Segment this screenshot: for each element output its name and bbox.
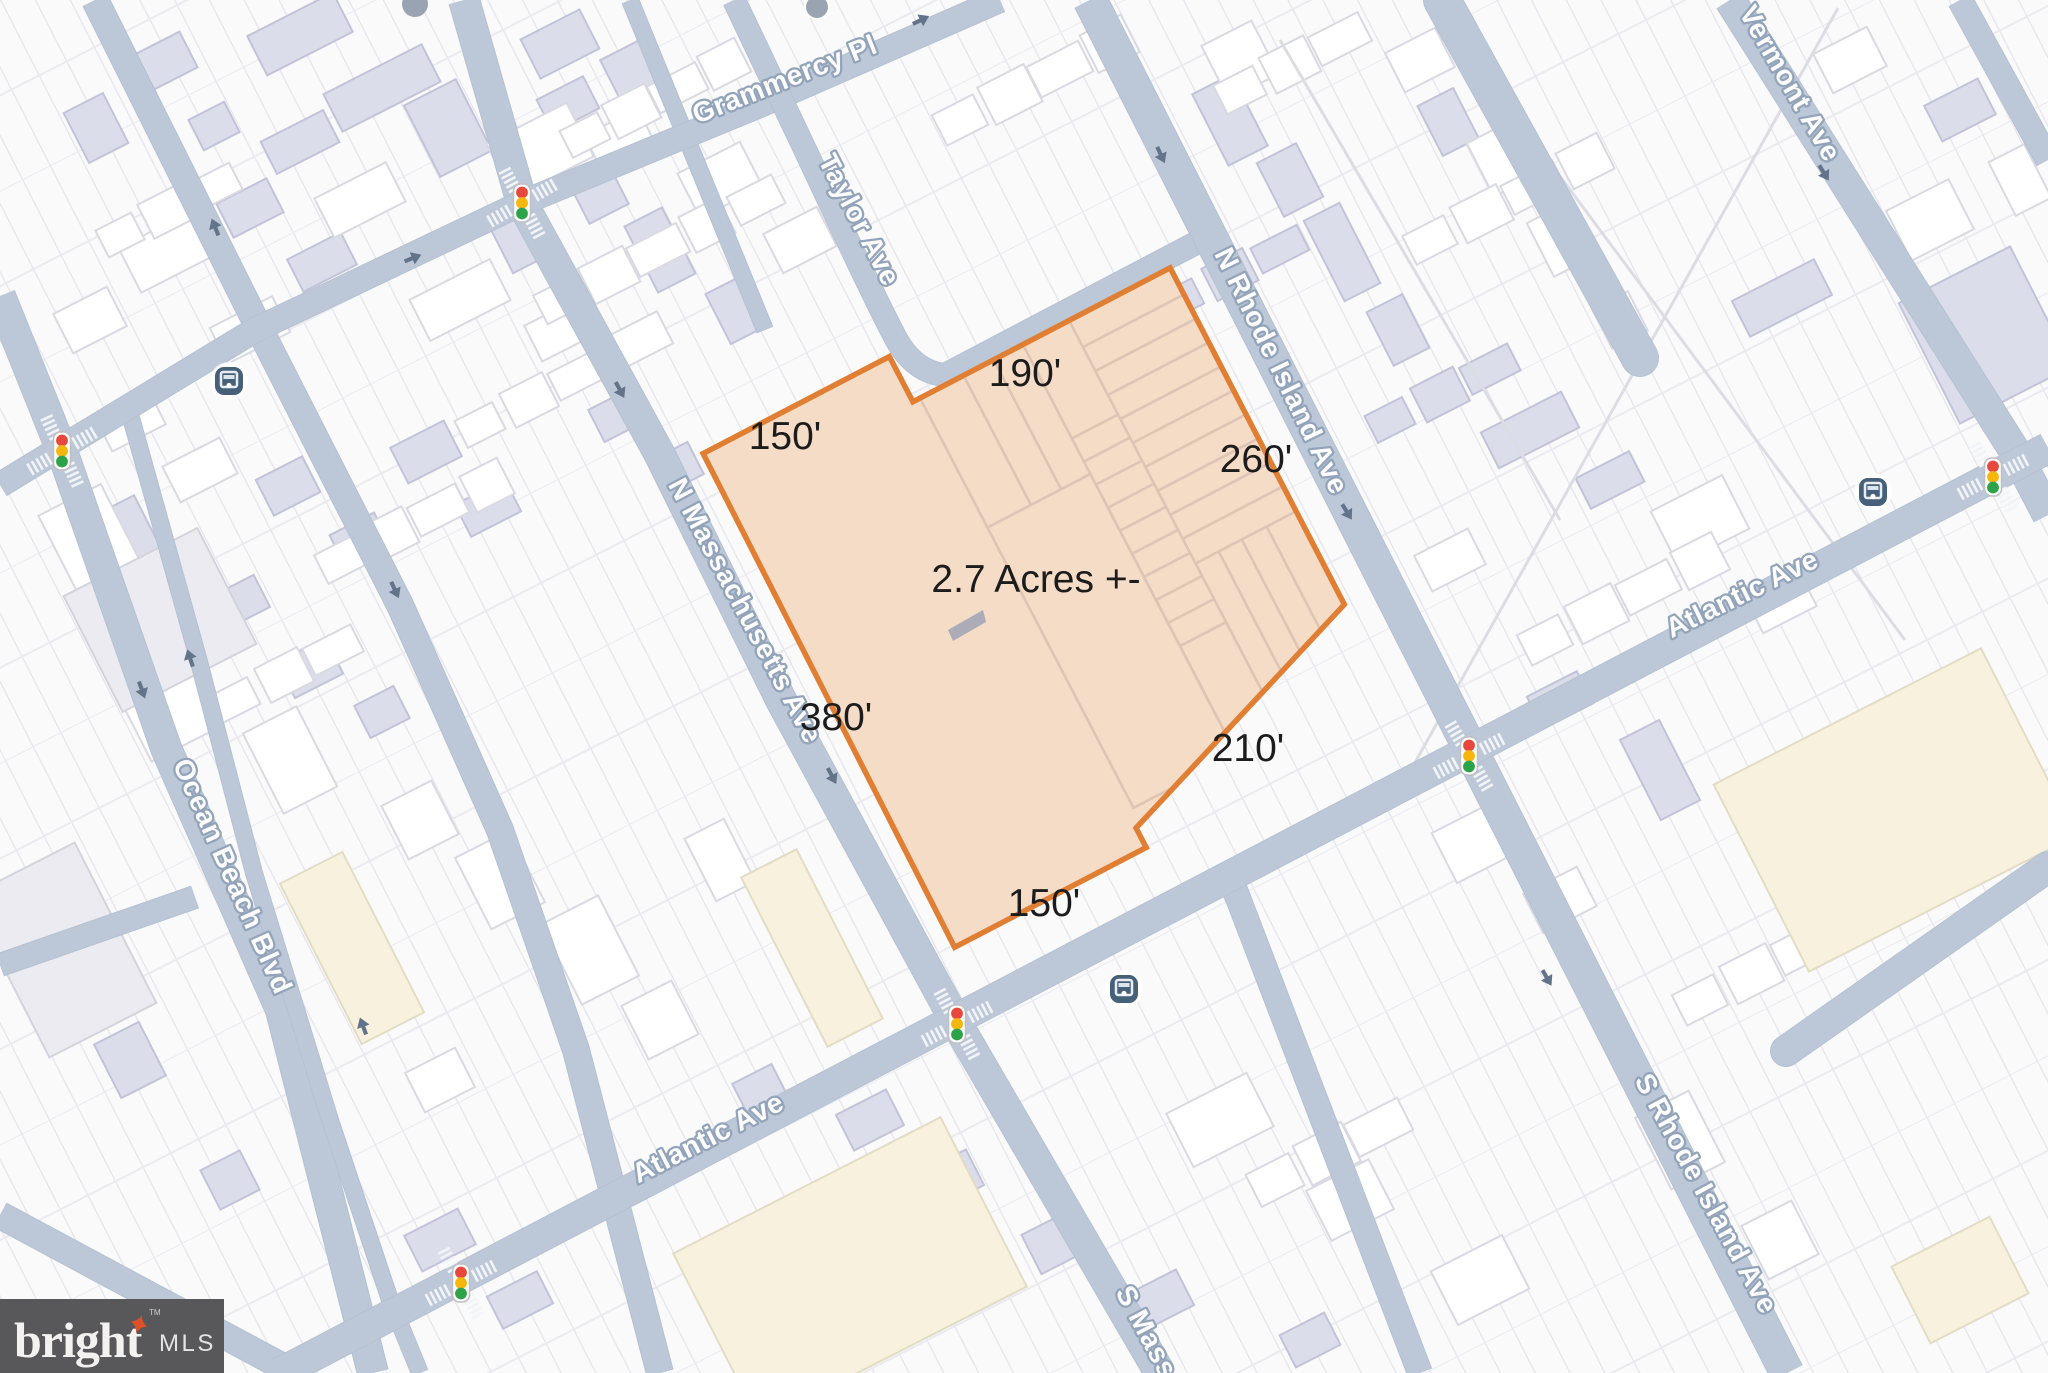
- svg-text:380': 380': [800, 696, 873, 739]
- svg-text:150': 150': [1008, 882, 1081, 925]
- svg-text:260': 260': [1220, 438, 1293, 481]
- svg-text:MLS: MLS: [159, 1330, 216, 1357]
- svg-text:190': 190': [989, 352, 1062, 395]
- svg-text:150': 150': [749, 415, 822, 458]
- svg-text:210': 210': [1212, 727, 1285, 770]
- svg-text:bright: bright: [14, 1312, 143, 1368]
- svg-text:2.7 Acres +-: 2.7 Acres +-: [931, 558, 1140, 601]
- svg-text:TM: TM: [149, 1308, 161, 1317]
